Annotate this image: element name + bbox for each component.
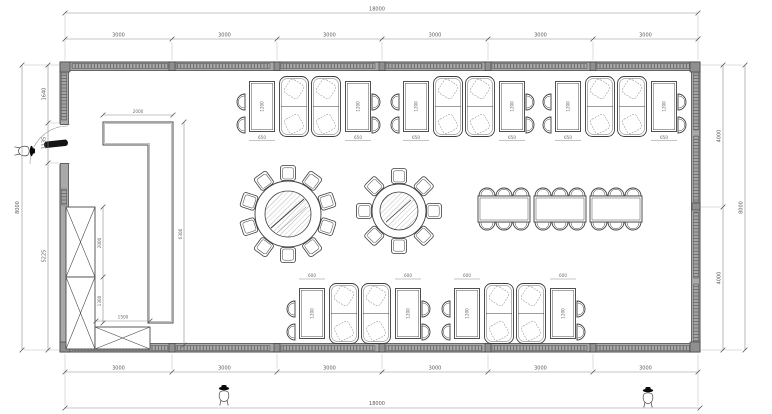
cabinet-width-label: 1500 [118,315,129,320]
dim-segment: 5225 [42,250,48,263]
banquet-table [534,196,586,222]
table-dim-label: 600 [404,273,412,278]
table-dim-label: 650 [258,135,266,140]
table-dim-label: 600 [559,273,567,278]
dim-segment: 3000 [323,366,336,372]
table-dim-label: 1200 [661,101,666,112]
booth-group: 1200 1200 650 650 [543,77,686,141]
table-dim-label: 650 [412,135,420,140]
table-dim-label: 650 [564,135,572,140]
dim-segment: 3000 [429,33,442,39]
table-dim-label: 600 [308,273,316,278]
dim-segment: 1135 [42,137,48,150]
table-dim-label: 1200 [560,308,565,319]
dim-segment: 3000 [112,33,125,39]
dimension-right: 4000 4000 8000 [701,63,747,353]
dim-segment: 3000 [112,366,125,372]
round-table-small [357,169,442,254]
dim-overall-right: 8000 [739,201,745,214]
table-dim-label: 1200 [309,308,314,319]
dim-segment: 3000 [639,33,652,39]
dim-segment: 3000 [429,366,442,372]
table-dim-label: 1200 [405,308,410,319]
table-dim-label: 1200 [464,308,469,319]
cabinet-upper-label: 2000 [97,237,102,248]
dim-segment: 1640 [42,88,48,101]
table-dim-label: 650 [508,135,516,140]
cabinet-upper [66,207,95,277]
dim-overall-bottom: 18000 [369,401,385,407]
dimension-bottom: 3000 3000 3000 3000 3000 3000 18000 [63,354,703,410]
table-dim-label: 1200 [565,101,570,112]
cabinet-lower [66,277,95,349]
dimension-left: 1640 1135 5225 8000 [15,63,59,353]
banquet-table-group [478,188,642,230]
table-dim-label: 1200 [413,101,418,112]
dim-segment: 3000 [323,33,336,39]
counter-length-label: 6300 [178,228,183,239]
lazy-susan [265,191,311,237]
counter-width-label: 2000 [133,109,144,114]
banquet-table [590,196,642,222]
cabinet-base [95,327,150,349]
table-dim-label: 1200 [509,101,514,112]
table-dim-label: 650 [354,135,362,140]
dim-overall-top: 18000 [369,7,385,13]
banquet-table [478,196,530,222]
table-dim-label: 1200 [355,101,360,112]
table-dim-label: 1200 [259,101,264,112]
dim-segment: 3000 [218,33,231,39]
cabinet-lower-label: 1300 [97,295,102,306]
dim-segment: 3000 [218,366,231,372]
dim-segment: 4000 [717,130,723,143]
table-dim-label: 600 [463,273,471,278]
dimension-top: 18000 3000 3000 3000 3000 3000 3000 [63,7,701,61]
entrance-door [30,124,70,164]
dim-segment: 3000 [534,33,547,39]
dim-segment: 4000 [717,272,723,285]
dim-segment: 3000 [534,366,547,372]
table-dim-label: 650 [660,135,668,140]
booth-row-top: 1200 1200 650 650 1200 1200 650 650 1200… [237,77,686,141]
dim-overall-left: 8000 [15,201,21,214]
booth-group: 1200 1200 650 650 [237,77,380,141]
booth-group: 1200 1200 650 650 [391,77,534,141]
dim-segment: 3000 [639,366,652,372]
floor-plan-canvas: 2000 6300 2000 1300 1500 1200 1200 650 6… [0,0,772,414]
